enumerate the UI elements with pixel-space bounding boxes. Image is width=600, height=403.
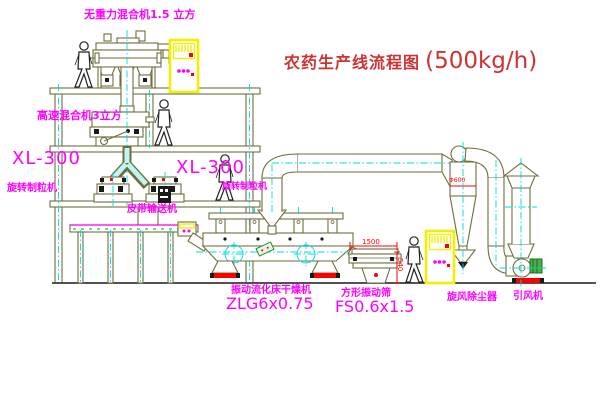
vibrating-sieve (349, 242, 401, 283)
title-capacity: (500kg/h) (425, 48, 537, 74)
belt-conveyor (70, 222, 209, 284)
label-sieve-model: FS0.6x1.5 (335, 299, 414, 316)
label-high-speed-mixer: 高速混合机3立方 (37, 110, 122, 122)
exhaust-duct (258, 154, 458, 234)
person-figure-4 (406, 237, 423, 282)
dim-sieve-height: 540 (396, 258, 404, 271)
label-granulator-left-model: XL-300 (12, 150, 81, 169)
label-gravity-mixer: 无重力混合机1.5 立方 (84, 9, 195, 21)
gravity-free-mixer (83, 30, 174, 108)
person-figure-2 (155, 100, 172, 145)
label-fan: 引风机 (513, 292, 543, 303)
title-text: 农药生产线流程图 (284, 53, 420, 72)
dim-sieve-width: 1500 (362, 238, 380, 246)
label-granulator-right-model: XL-300 (176, 159, 245, 178)
rotary-granulator-left (94, 172, 132, 206)
label-granulator-left-name: 旋转制粒机 (7, 184, 57, 195)
dim-cyclone-dia: Φ600 (449, 177, 465, 184)
control-cabinet-top (170, 40, 198, 92)
label-belt-conveyor: 皮带输送机 (127, 205, 177, 216)
induced-draft-fan (500, 158, 546, 288)
label-cyclone: 旋风除尘器 (447, 293, 497, 304)
label-dryer-model: ZLG6x0.75 (226, 296, 314, 313)
control-cabinet-right (426, 231, 454, 283)
control-pendant (158, 186, 171, 203)
person-figure-1 (75, 42, 92, 87)
label-granulator-right-name: 旋转制粒机 (222, 183, 267, 192)
flow-diagram-canvas: 农药生产线流程图 (500kg/h) 无重力混合机1.5 立方 高速混合机3立方… (0, 0, 600, 403)
page-title: 农药生产线流程图 (500kg/h) (284, 48, 537, 74)
